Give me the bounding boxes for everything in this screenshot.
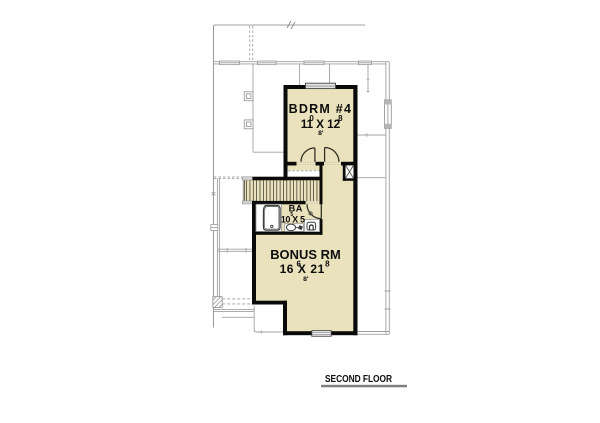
svg-text:16 X 21: 16 X 21 [280,262,325,276]
svg-text:8: 8 [325,260,330,269]
svg-text:8': 8' [303,276,309,283]
svg-text:8': 8' [318,130,324,137]
svg-text:5: 5 [290,212,293,218]
svg-text:SECOND FLOOR: SECOND FLOOR [325,373,392,384]
svg-text:8: 8 [338,114,343,123]
svg-text:6: 6 [296,260,301,269]
svg-text:BDRM #4: BDRM #4 [289,102,353,116]
svg-text:BONUS RM: BONUS RM [270,247,341,262]
svg-text:11 X 12: 11 X 12 [301,117,341,131]
svg-text:0: 0 [309,114,314,123]
